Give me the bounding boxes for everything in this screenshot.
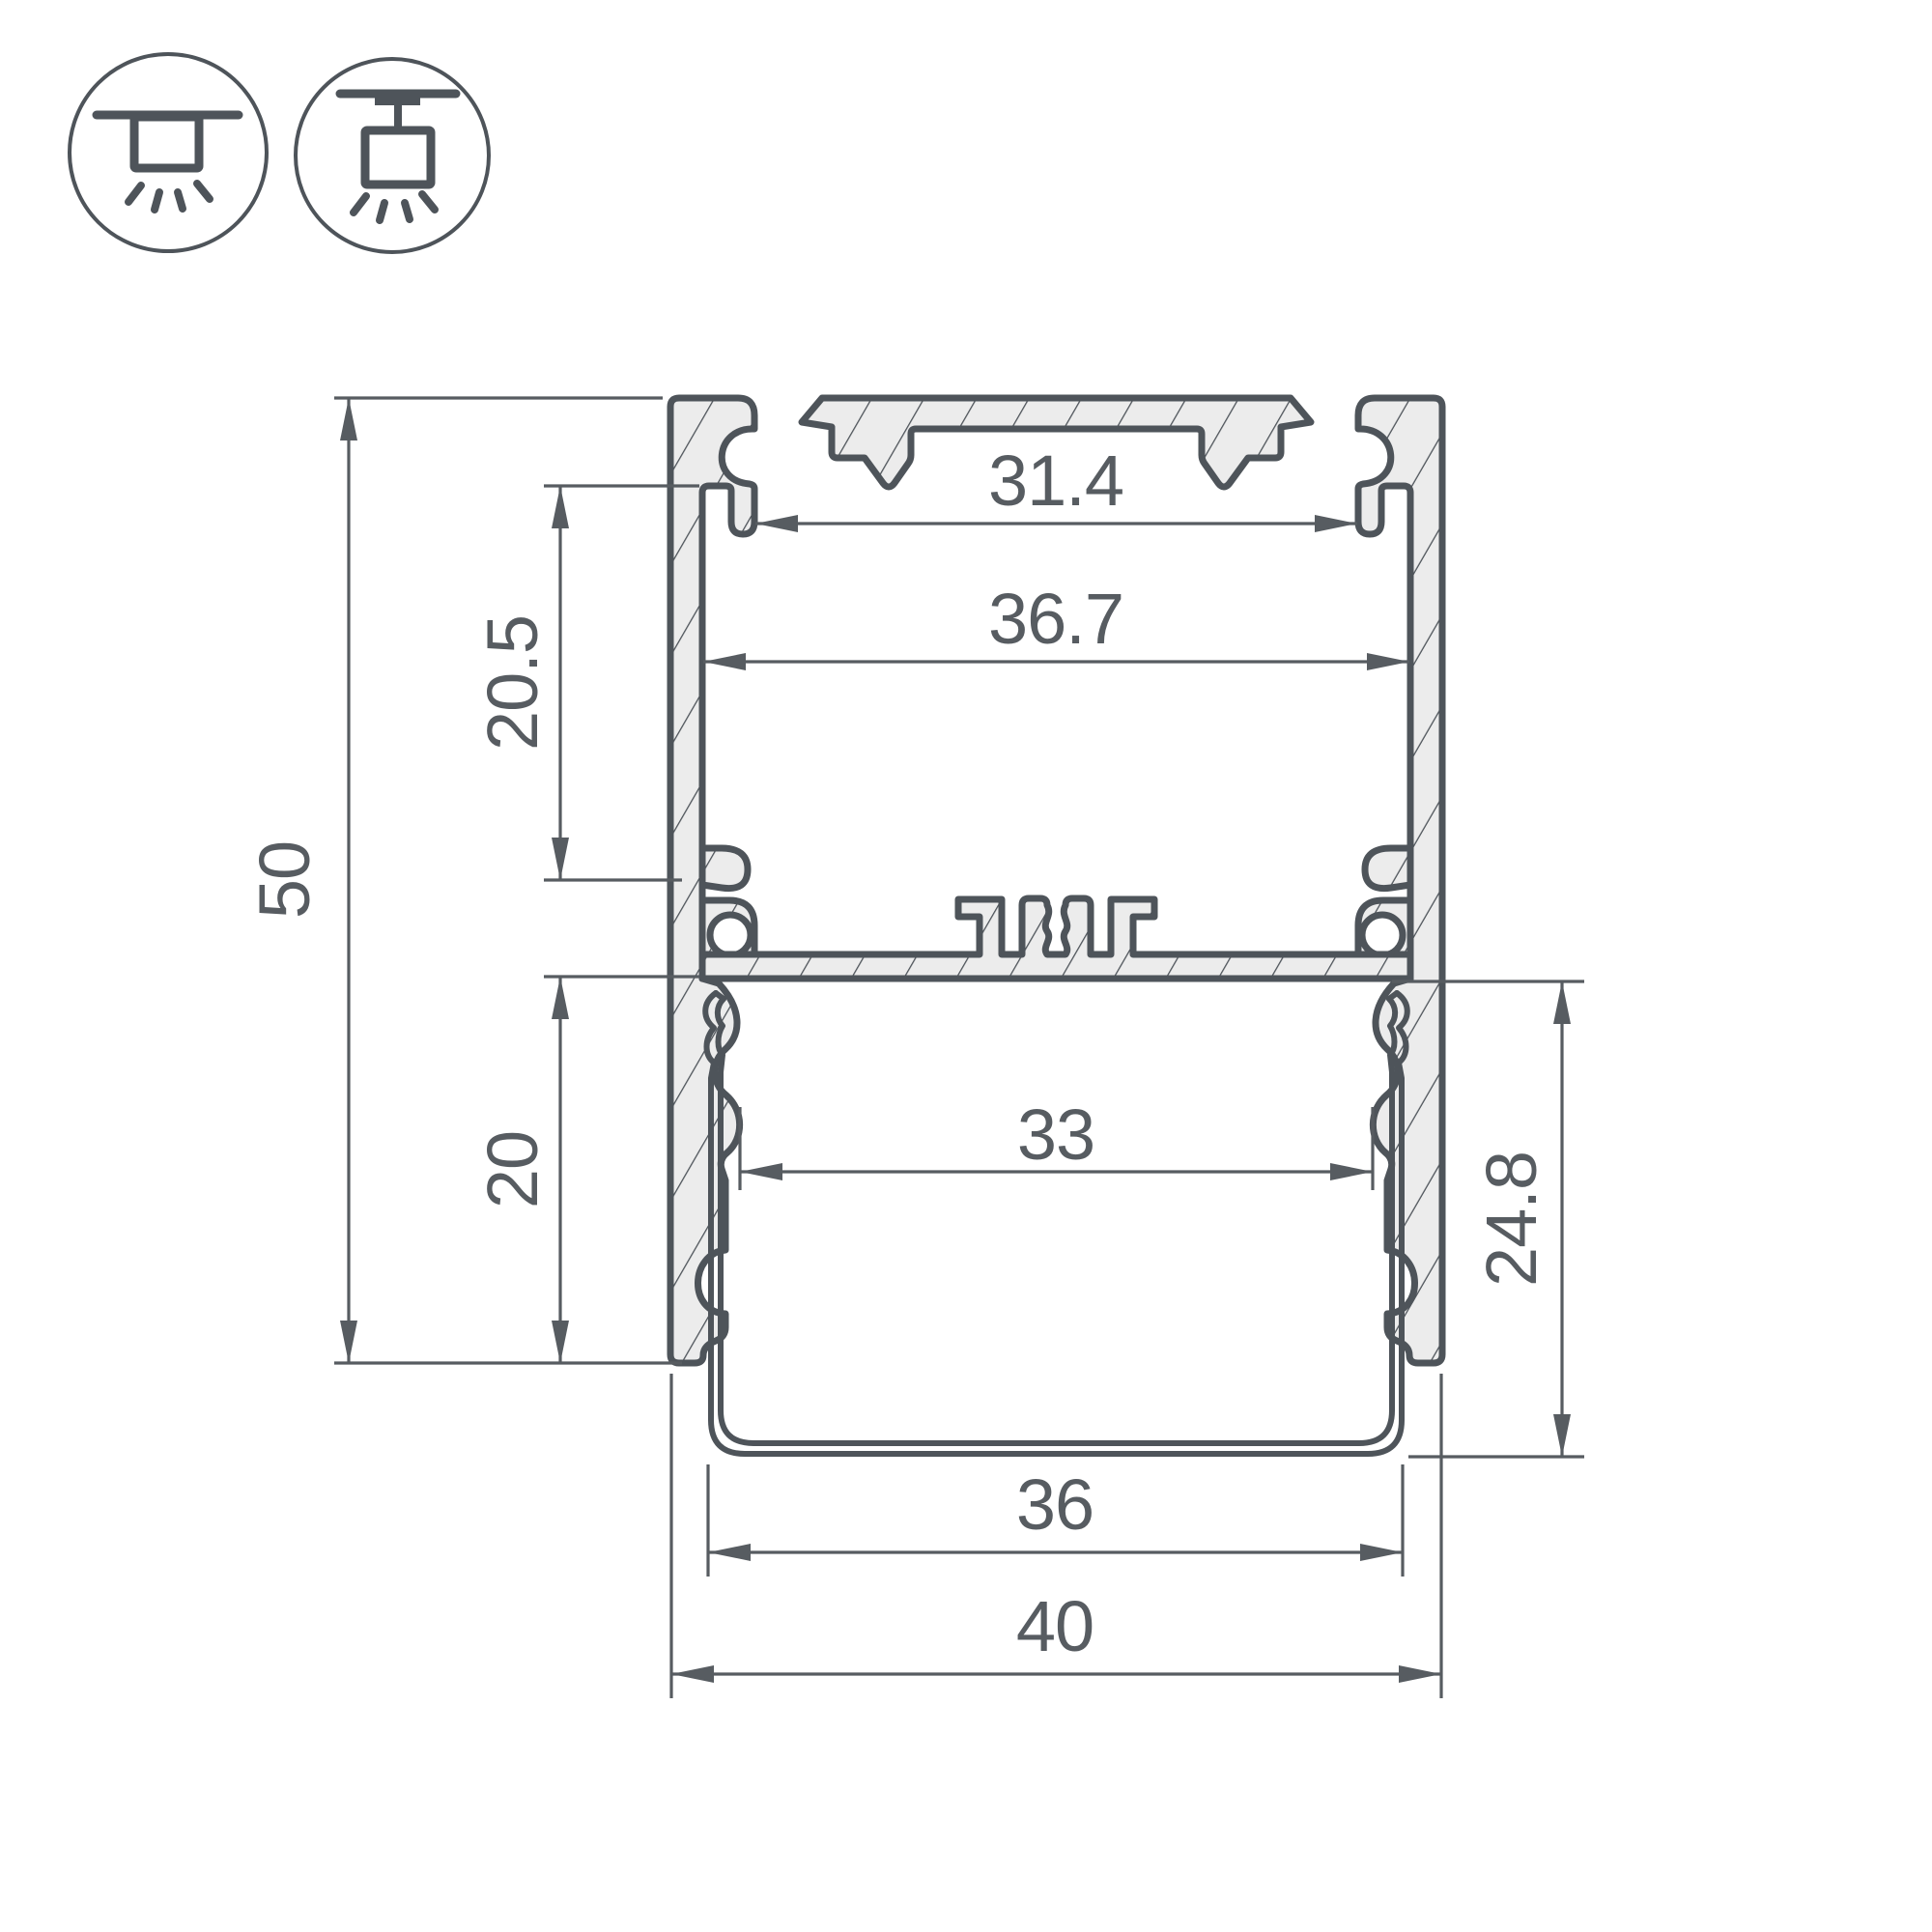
dimension-label-40: 40 — [1016, 1586, 1094, 1666]
drawing-page: 31.4 36.7 20.5 50 20 33 24.8 36 40 — [0, 0, 1932, 1932]
dimension-label-50: 50 — [244, 841, 325, 919]
dimension-label-36: 36 — [1016, 1464, 1094, 1545]
luminaire-box — [134, 117, 199, 168]
profile-section — [670, 398, 1442, 1454]
dimension-label-20-5: 20.5 — [472, 615, 553, 751]
dimension-label-33: 33 — [1017, 1094, 1094, 1175]
dimension-label-36-7: 36.7 — [988, 579, 1123, 659]
light-rays — [354, 194, 435, 220]
luminaire-box — [365, 130, 431, 185]
dimension-label-31-4: 31.4 — [988, 440, 1123, 521]
surface-mount-icon — [70, 54, 267, 251]
dimension-labels: 31.4 36.7 20.5 50 20 33 24.8 36 40 — [244, 440, 1551, 1666]
dimension-label-24-8: 24.8 — [1471, 1151, 1551, 1287]
light-rays — [128, 184, 210, 210]
mounting-icons — [70, 54, 489, 252]
diffuser-right-half — [1056, 993, 1407, 1454]
right-shelf-hook — [1365, 848, 1410, 889]
icon-circle — [70, 54, 267, 251]
pendant-mount-icon — [296, 59, 489, 252]
diffuser-left-half — [705, 993, 1057, 1454]
led-mounting-shelf — [702, 898, 1410, 979]
diffuser — [705, 993, 1407, 1454]
icon-circle — [296, 59, 489, 252]
dimension-label-20: 20 — [472, 1131, 553, 1208]
left-shelf-hook — [702, 848, 748, 889]
technical-drawing: 31.4 36.7 20.5 50 20 33 24.8 36 40 — [0, 0, 1932, 1932]
